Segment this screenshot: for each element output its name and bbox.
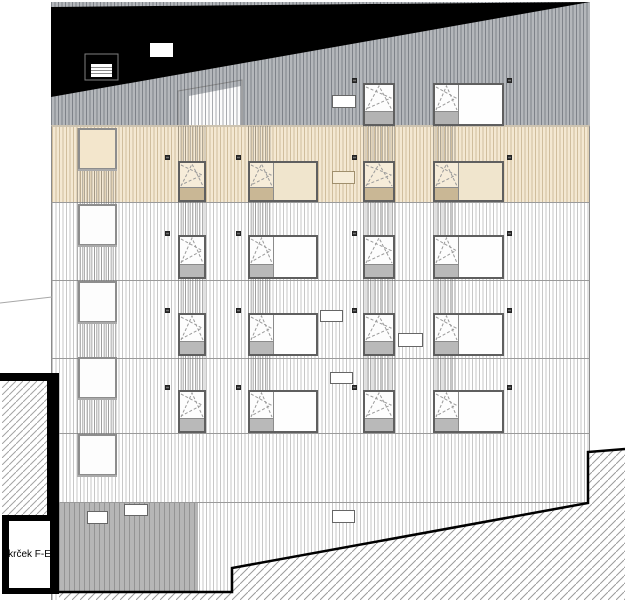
krcek-label-box: krček F-E	[2, 515, 59, 594]
krcek-connector-block: krček F-E	[0, 373, 60, 600]
elevation-drawing-canvas: krček F-E	[0, 0, 625, 600]
terrain	[0, 0, 625, 600]
terrain-line-left	[0, 297, 52, 303]
ground-hatch	[59, 449, 625, 600]
krcek-hatch-area	[2, 381, 48, 515]
krcek-label-box-inner: krček F-E	[9, 521, 50, 588]
krcek-label: krček F-E	[8, 549, 51, 560]
